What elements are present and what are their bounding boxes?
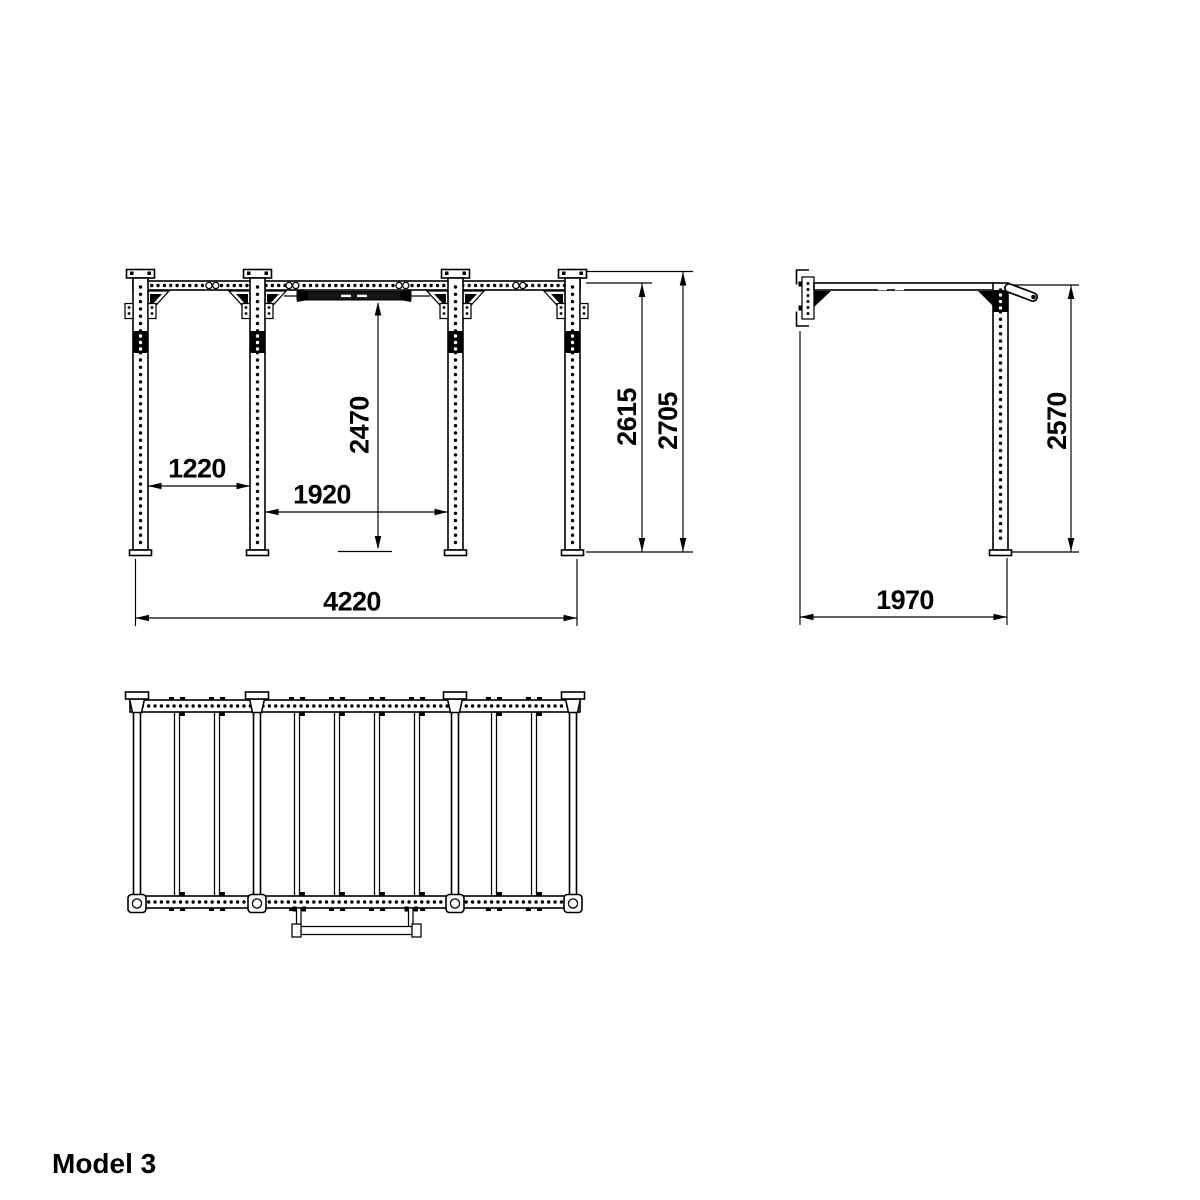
dim-text-2615: 2615 bbox=[612, 388, 642, 446]
dimension-pullup-bar-height: 2470 bbox=[338, 302, 392, 552]
side-post bbox=[978, 283, 1012, 556]
side-cross-beam bbox=[814, 283, 994, 290]
dimension-bay1-width: 1220 bbox=[148, 454, 250, 490]
front-elevation-view: 1220 1920 2470 2615 bbox=[125, 270, 693, 627]
pullup-bar bbox=[284, 290, 430, 303]
drawing-sheet: 1220 1920 2470 2615 bbox=[0, 0, 1200, 1200]
front-top-beam bbox=[133, 281, 580, 290]
side-elevation-view: 2570 1970 bbox=[797, 270, 1080, 625]
dim-text-1970: 1970 bbox=[876, 585, 934, 615]
dimension-depth: 1970 bbox=[800, 331, 1007, 625]
dimension-side-height: 2570 bbox=[1012, 286, 1079, 553]
technical-drawing: 1220 1920 2470 2615 bbox=[0, 0, 1200, 1200]
dim-text-2705: 2705 bbox=[653, 392, 683, 450]
plan-rear-rail bbox=[130, 896, 580, 908]
dimension-bay2-width: 1920 bbox=[265, 480, 448, 516]
dimension-total-width: 4220 bbox=[136, 559, 578, 626]
dim-text-1920: 1920 bbox=[293, 480, 351, 510]
model-label: Model 3 bbox=[52, 1148, 156, 1179]
dim-text-4220: 4220 bbox=[323, 587, 381, 617]
wall-mount-bracket bbox=[797, 270, 832, 326]
dim-text-2470: 2470 bbox=[345, 396, 375, 454]
plan-posts bbox=[134, 712, 577, 896]
plan-pullup-bar bbox=[292, 907, 421, 938]
plan-front-rail bbox=[130, 700, 580, 712]
dimension-frame-height: 2615 bbox=[586, 283, 652, 552]
kipping-bar bbox=[1009, 288, 1036, 299]
dim-text-2570: 2570 bbox=[1042, 392, 1072, 450]
dim-text-1220: 1220 bbox=[168, 454, 226, 484]
plan-cross-members bbox=[169, 697, 542, 911]
top-plan-view bbox=[126, 692, 585, 937]
